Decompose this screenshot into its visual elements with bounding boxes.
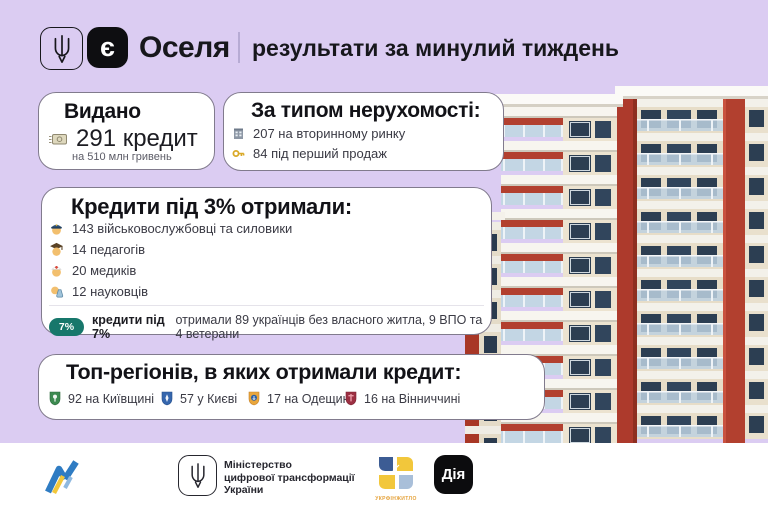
key-icon [232, 147, 245, 160]
diia-logo: Дія [434, 455, 473, 494]
rate3-item: 143 військовослужбовці та силовики [49, 221, 292, 236]
page-subtitle: результати за минулий тиждень [252, 27, 619, 68]
page-title: Оселя [139, 27, 230, 68]
rate7-summary-row: 7% кредити під 7% отримали 89 українців … [49, 313, 491, 341]
rate3-card-title: Кредити під 3% отримали: [71, 194, 352, 220]
tryzub-logo-box [40, 27, 83, 70]
region-item: 16 на Вінниччині [345, 391, 460, 406]
rate3-item: 12 науковців [49, 284, 148, 299]
property-item: 84 під перший продаж [232, 146, 387, 161]
region-item-text: 57 у Києві [180, 392, 237, 406]
rate3-item-text: 12 науковців [72, 284, 148, 299]
e-oselia-app-icon: є [87, 27, 128, 68]
property-item: 207 на вторинному ринку [232, 126, 405, 141]
building-icon [232, 127, 245, 140]
issued-note: на 510 млн гривень [72, 151, 172, 163]
app-letter: є [100, 32, 115, 63]
issued-value: 291 кредит [76, 125, 198, 153]
scientist-icon [49, 284, 64, 299]
infographic-canvas: є Оселя результати за минулий тиждень Ви… [0, 0, 768, 512]
regions-card-title: Топ-регіонів, в яких отримали кредит: [66, 360, 461, 385]
regions-card: Топ-регіонів, в яких отримали кредит: 92… [38, 354, 545, 420]
property-item-text: 207 на вторинному ринку [253, 126, 405, 141]
title-separator [238, 32, 240, 63]
vinnytsia-oblast-shield-icon [345, 391, 357, 406]
region-item: 17 на Одещині [248, 391, 352, 406]
region-item-text: 16 на Вінниччині [364, 392, 460, 406]
footer-bar: МІНІСТЕРСТВО ЕКОНОМІКИ УКРАЇНИ Міністерс… [0, 443, 768, 512]
medic-icon [49, 263, 64, 278]
rate3-card: Кредити під 3% отримали: 143 військовосл… [41, 187, 492, 335]
ministry-of-economy-logo-icon [44, 460, 80, 496]
rate3-item-text: 20 медиків [72, 263, 136, 278]
property-card-title: За типом нерухомості: [251, 99, 480, 123]
tryzub-icon [188, 462, 208, 489]
teacher-icon [49, 242, 64, 257]
rate3-item-text: 143 військовослужбовці та силовики [72, 221, 292, 236]
kyiv-oblast-shield-icon [49, 391, 61, 406]
rate7-text: отримали 89 українців без власного житла… [175, 313, 491, 341]
issued-card: Видано 291 кредит на 510 млн гривень [38, 92, 215, 170]
diia-label: Дія [442, 466, 466, 483]
ministry-of-digital-logo-box [178, 455, 217, 496]
police-officer-icon [49, 221, 64, 236]
region-item: 57 у Києві [161, 391, 237, 406]
region-item-text: 92 на Київщині [68, 392, 154, 406]
rate7-badge: 7% [49, 318, 84, 336]
kyiv-city-shield-icon [161, 391, 173, 406]
rate3-item-text: 14 педагогів [72, 242, 145, 257]
rate3-item: 14 педагогів [49, 242, 145, 257]
tryzub-icon [50, 34, 74, 64]
region-item-text: 17 на Одещині [267, 392, 352, 406]
region-item: 92 на Київщині [49, 391, 154, 406]
property-type-card: За типом нерухомості: 207 на вторинному … [223, 92, 504, 171]
ukrfinzhytlo-label: УКРФІНЖИТЛО [374, 496, 418, 502]
ministry-of-digital-label: Міністерство цифрової трансформації Укра… [224, 459, 355, 497]
odesa-oblast-shield-icon [248, 391, 260, 406]
issued-card-title: Видано [64, 100, 141, 124]
ukrfinzhytlo-pinwheel-icon [376, 454, 416, 490]
money-icon [48, 132, 68, 147]
rate3-item: 20 медиків [49, 263, 136, 278]
property-item-text: 84 під перший продаж [253, 146, 387, 161]
divider [49, 305, 484, 306]
ukrfinzhytlo-logo: УКРФІНЖИТЛО [374, 454, 418, 502]
rate7-bold-text: кредити під 7% [92, 313, 171, 341]
